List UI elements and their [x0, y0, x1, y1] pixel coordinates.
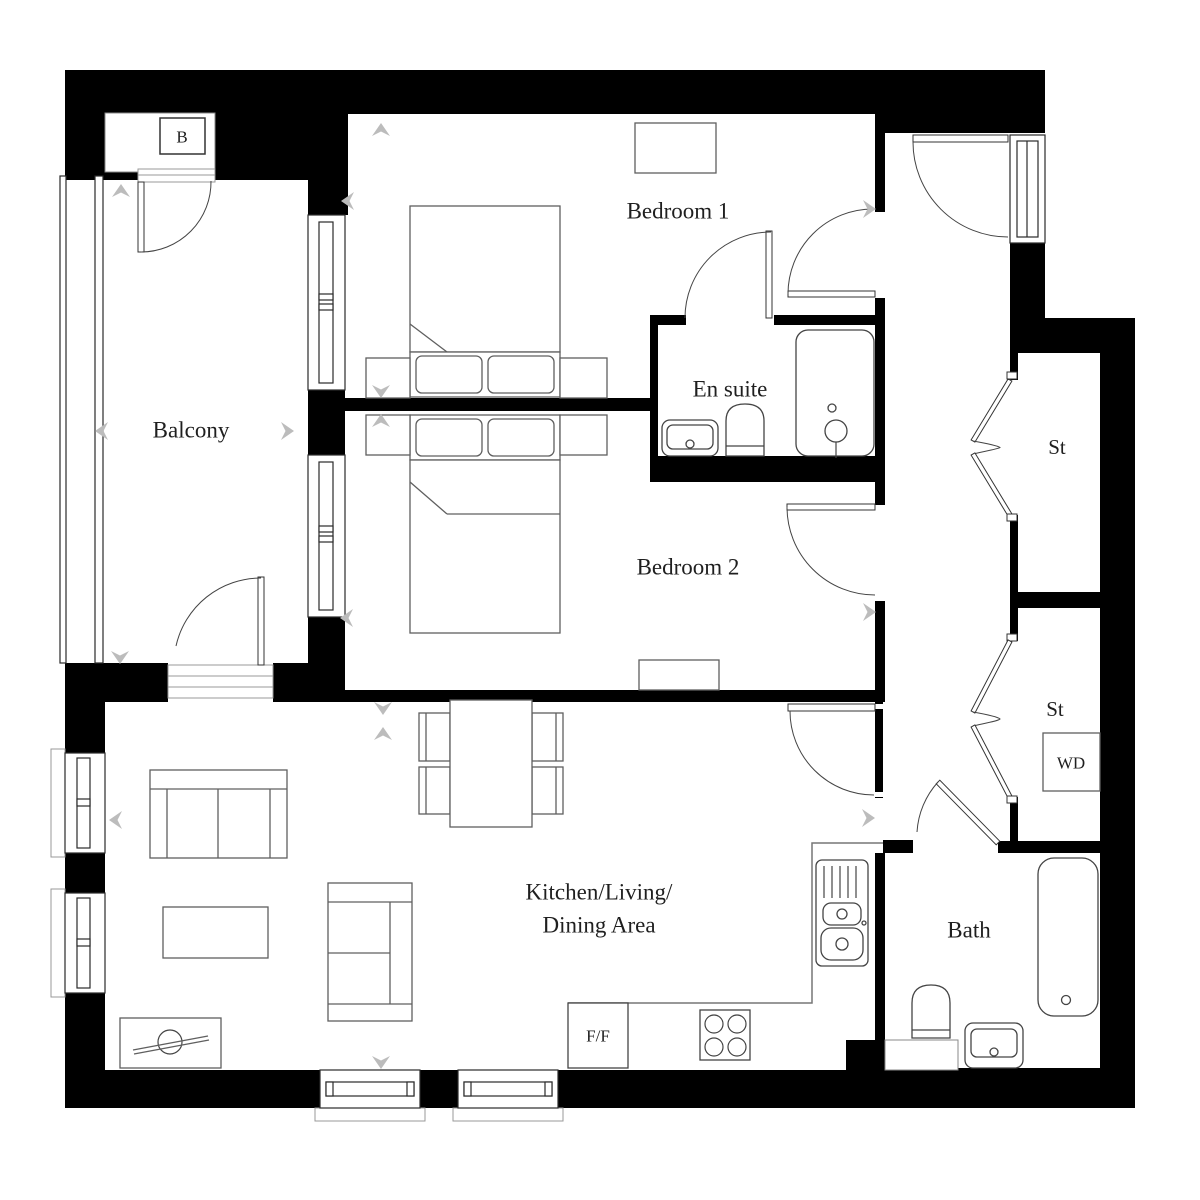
dining-table: [450, 700, 532, 827]
ensuite-label: En suite: [693, 377, 768, 402]
kitchen-living-dining-room: F/F: [120, 700, 883, 1068]
wall-segment: [650, 315, 686, 325]
boiler-cupboard-door-leaf: [138, 182, 144, 252]
floor-plan: B Balcony: [0, 0, 1200, 1200]
window-frame: [464, 1082, 552, 1096]
ensuite-toilet: [726, 404, 764, 456]
window-mullion: [326, 1082, 333, 1096]
arrow-up-icon: [112, 184, 130, 197]
storage1-bifold-leaf: [971, 453, 1012, 516]
bedroom1-room: Bedroom 1: [366, 123, 729, 398]
arrow-down-icon: [372, 1056, 390, 1069]
window-mullion: [407, 1082, 414, 1096]
window-mullion: [545, 1082, 552, 1096]
wall-segment: [308, 390, 345, 455]
dining-chair: [419, 713, 450, 761]
wall-segment: [875, 601, 885, 702]
wall-segment: [875, 853, 885, 1040]
sink-drain: [837, 909, 847, 919]
window-mullion: [77, 939, 90, 946]
shower-drain: [828, 404, 836, 412]
wall-segment: [345, 398, 658, 411]
wall-segment: [883, 840, 913, 853]
living-furniture: [120, 770, 412, 1068]
dining-set: [419, 700, 563, 827]
balcony-door-leaf: [258, 577, 264, 665]
balcony-label: Balcony: [153, 418, 230, 443]
balcony-railing-outer: [60, 176, 66, 663]
wall-segment: [875, 114, 885, 212]
washer-dryer-label: WD: [1057, 754, 1085, 773]
dining-chair: [419, 767, 450, 814]
bifold-hinge-tick: [1007, 372, 1017, 379]
ensuite-door-leaf: [766, 231, 772, 318]
window-frame: [319, 222, 333, 383]
ensuite-room: En suite: [662, 330, 874, 458]
pillow: [488, 356, 554, 393]
pillow: [488, 419, 554, 456]
wall-segment: [308, 70, 348, 215]
wall-segment: [308, 617, 345, 702]
basin-drain: [686, 440, 694, 448]
window-mullion: [319, 294, 333, 300]
bath-label: Bath: [947, 918, 991, 943]
entrance-door-swing: [913, 142, 1008, 237]
dining-chair: [532, 767, 563, 814]
sofa-small: [328, 883, 412, 1021]
window-mullion: [319, 536, 333, 542]
arrow-left-icon: [109, 811, 122, 829]
wall-segment: [1010, 797, 1018, 845]
fridge-freezer-label: F/F: [586, 1027, 610, 1046]
window-mullion: [464, 1082, 471, 1096]
wall-segment: [65, 1070, 320, 1108]
storage2-label: St: [1046, 697, 1064, 721]
wall-segment: [774, 315, 885, 325]
wall-segment: [420, 1070, 458, 1108]
floor-plan-drawing: B Balcony: [0, 0, 1200, 1200]
bedroom2-door-swing: [787, 507, 875, 595]
bedroom2-dresser: [639, 660, 719, 690]
wall-segment: [650, 456, 885, 482]
window-frame: [326, 1082, 414, 1096]
nightstand: [560, 358, 607, 398]
arrow-down-icon: [111, 651, 129, 664]
boiler-cupboard-door-swing: [141, 181, 211, 252]
entrance-door-leaf: [913, 135, 1008, 142]
bathroom-room: Bath: [885, 858, 1098, 1070]
wall-segment: [1010, 515, 1018, 592]
bath-door-swing: [917, 782, 938, 832]
arrow-right-icon: [862, 809, 875, 827]
wall-segment: [558, 1070, 846, 1108]
sink-tap: [862, 921, 866, 925]
door-stop-tick: [874, 792, 884, 797]
bath-boxing: [885, 1040, 958, 1070]
shower-head: [825, 420, 847, 442]
bifold-meeting-curve: [973, 441, 1000, 454]
bedroom1-door-leaf: [788, 291, 875, 297]
window-mullion: [319, 304, 333, 310]
bathtub: [1038, 858, 1098, 1016]
bedroom1-label: Bedroom 1: [627, 199, 730, 224]
boiler-label: B: [176, 128, 187, 147]
wall-segment: [65, 993, 105, 1070]
wall-segment: [650, 317, 658, 480]
bathtub-drain: [1062, 996, 1071, 1005]
nightstand: [366, 358, 410, 398]
arrow-right-icon: [281, 422, 294, 440]
storage-closets: St St WD: [971, 372, 1100, 803]
pillow: [416, 419, 482, 456]
storage2-bifold-leaf: [971, 725, 1012, 798]
wall-segment: [273, 663, 308, 702]
kitchen-label-line1: Kitchen/Living/: [526, 880, 674, 905]
nightstand: [560, 415, 607, 455]
bath-door-leaf: [936, 780, 1000, 845]
bedroom1-door-swing: [788, 209, 873, 294]
wall-segment: [885, 1068, 1100, 1108]
arrow-down-icon: [374, 702, 392, 715]
living-hall-door-swing: [790, 711, 874, 795]
wall-segment: [1010, 592, 1100, 608]
living-hall-door-leaf: [788, 704, 875, 711]
wall-segment: [65, 853, 105, 893]
arrow-up-icon: [372, 123, 390, 136]
bedroom1-bed: [410, 206, 560, 352]
storage1-bifold-leaf: [971, 379, 1012, 442]
dining-chair: [532, 713, 563, 761]
storage2-bifold-leaf: [971, 640, 1012, 713]
coffee-table: [163, 907, 268, 958]
arrow-right-icon: [863, 603, 876, 621]
hall-door-bar: [875, 702, 883, 798]
ensuite-door-swing: [685, 232, 771, 318]
wall-segment: [65, 663, 168, 702]
bedroom1-dresser: [635, 123, 716, 173]
window-sill: [315, 1108, 425, 1121]
bifold-meeting-curve: [973, 712, 1000, 726]
storage1-label: St: [1048, 435, 1066, 459]
wall-segment: [1100, 353, 1135, 1108]
balcony-railing-inner: [95, 176, 103, 663]
balcony-room: B Balcony: [60, 113, 273, 698]
wall-segment: [880, 70, 1045, 133]
wall-segment: [308, 690, 877, 702]
pillow: [416, 356, 482, 393]
doors: [685, 135, 1008, 845]
bedroom2-label: Bedroom 2: [637, 555, 740, 580]
kitchen-label-line2: Dining Area: [542, 913, 655, 938]
sink-drain: [836, 938, 848, 950]
window-sill: [51, 749, 65, 857]
wall-segment: [846, 1040, 885, 1108]
balcony-door-swing: [176, 578, 261, 646]
bedroom2-bed: [410, 460, 560, 633]
bedroom2-door-leaf: [787, 504, 875, 510]
balcony-door-threshold: [168, 665, 273, 698]
wall-segment: [1010, 240, 1045, 318]
basin-drain: [990, 1048, 998, 1056]
window-sill: [453, 1108, 563, 1121]
window-mullion: [319, 526, 333, 532]
nightstand: [366, 415, 410, 455]
wall-segment: [1010, 318, 1135, 353]
bifold-hinge-tick: [1007, 796, 1017, 803]
bifold-hinge-tick: [1007, 514, 1017, 521]
window-mullion: [77, 799, 90, 806]
wall-segment: [345, 70, 880, 114]
window-sill: [51, 889, 65, 997]
arrow-up-icon: [374, 727, 392, 740]
